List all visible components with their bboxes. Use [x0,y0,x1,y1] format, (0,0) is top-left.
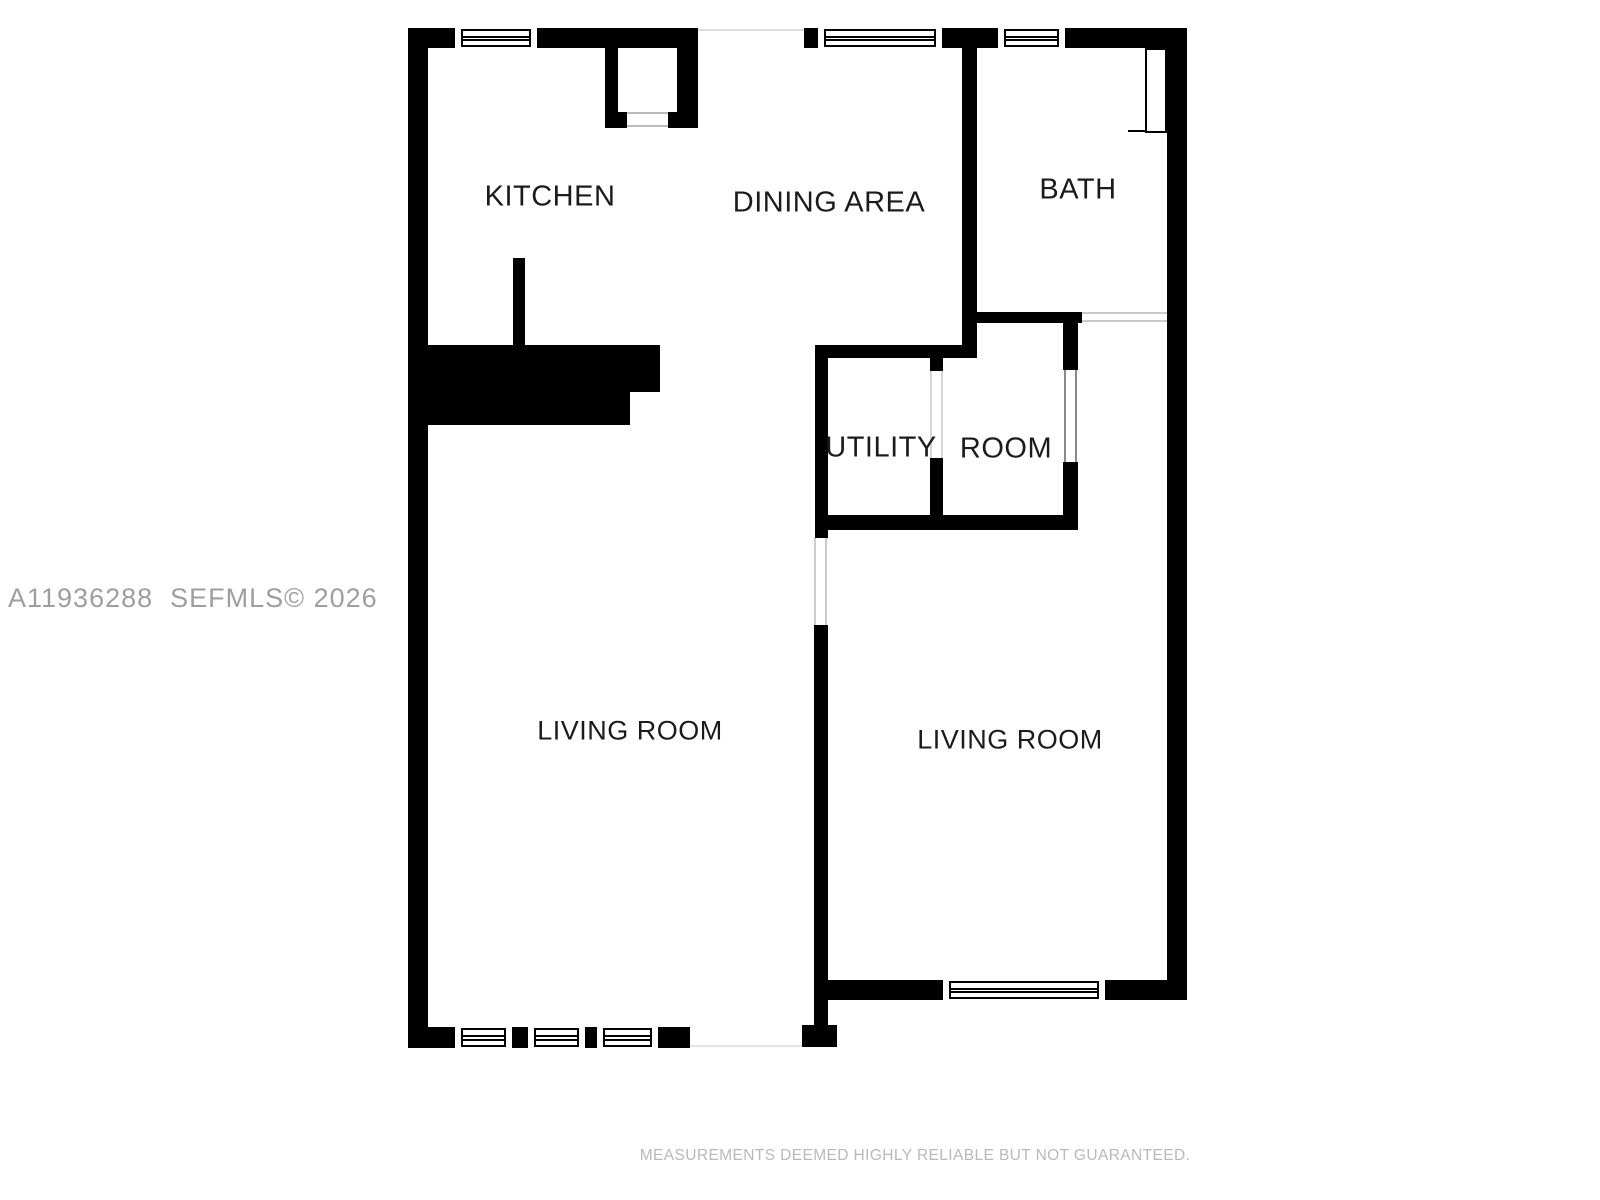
wall-living-divider [814,625,828,1047]
wall-living-divider-foot [802,1025,837,1047]
bath-door-leaf-tick [1128,130,1146,132]
kitchen-window [455,28,537,48]
left-living-window-3 [597,1027,658,1048]
wall-utility-bottom [815,515,1078,530]
left-living-entry-line [690,1045,802,1047]
utility-door-line-right [941,371,943,458]
wall-kitchen-stub [513,258,525,345]
kitchen-counter-block-lower [428,392,630,425]
bath-window [998,28,1065,48]
left-living-window-1 [455,1027,512,1048]
floor-plan: KITCHEN DINING AREA BATH UTILITY ROOM LI… [0,0,1600,1200]
measurement-disclaimer: MEASUREMENTS DEEMED HIGHLY RELIABLE BUT … [640,1147,1191,1165]
room-label-bath: BATH [1039,174,1116,207]
left-living-window-2 [528,1027,585,1048]
nook-sill-line-bottom [627,125,668,127]
wall-left-exterior [408,28,428,1048]
mls-watermark: A11936288 SEFMLS© 2026 [8,583,378,614]
wall-nook-foot-left [605,112,627,128]
room-door-line-left [1064,370,1066,462]
room-label-kitchen: KITCHEN [485,181,616,214]
room-label-utility: UTILITY [825,432,936,465]
room-label-living-left: LIVING ROOM [537,716,723,747]
bath-door-opening-line-bottom [1082,320,1167,322]
top-entry-opening-line [698,29,804,31]
living-divider-door-line-right [825,538,827,625]
wall-top-left-segment [408,28,698,48]
wall-nook-foot-right [668,112,698,128]
wall-utility-top [815,345,977,358]
room-label-dining-area: DINING AREA [733,187,925,220]
right-living-window [943,980,1105,1000]
bath-door-leaf [1145,48,1167,133]
living-divider-door-line-left [814,538,816,625]
dining-window [818,28,942,48]
wall-room-right-upper [1063,312,1078,370]
room-label-room: ROOM [960,433,1052,466]
nook-sill-line-top [627,112,668,114]
kitchen-counter-block-upper [428,345,660,392]
wall-right-exterior [1167,28,1187,1000]
wall-utility-room-divider-stub [930,358,943,371]
room-label-living-right: LIVING ROOM [917,725,1103,756]
bath-door-opening-line-top [1082,312,1167,314]
room-door-line-right [1075,370,1077,462]
